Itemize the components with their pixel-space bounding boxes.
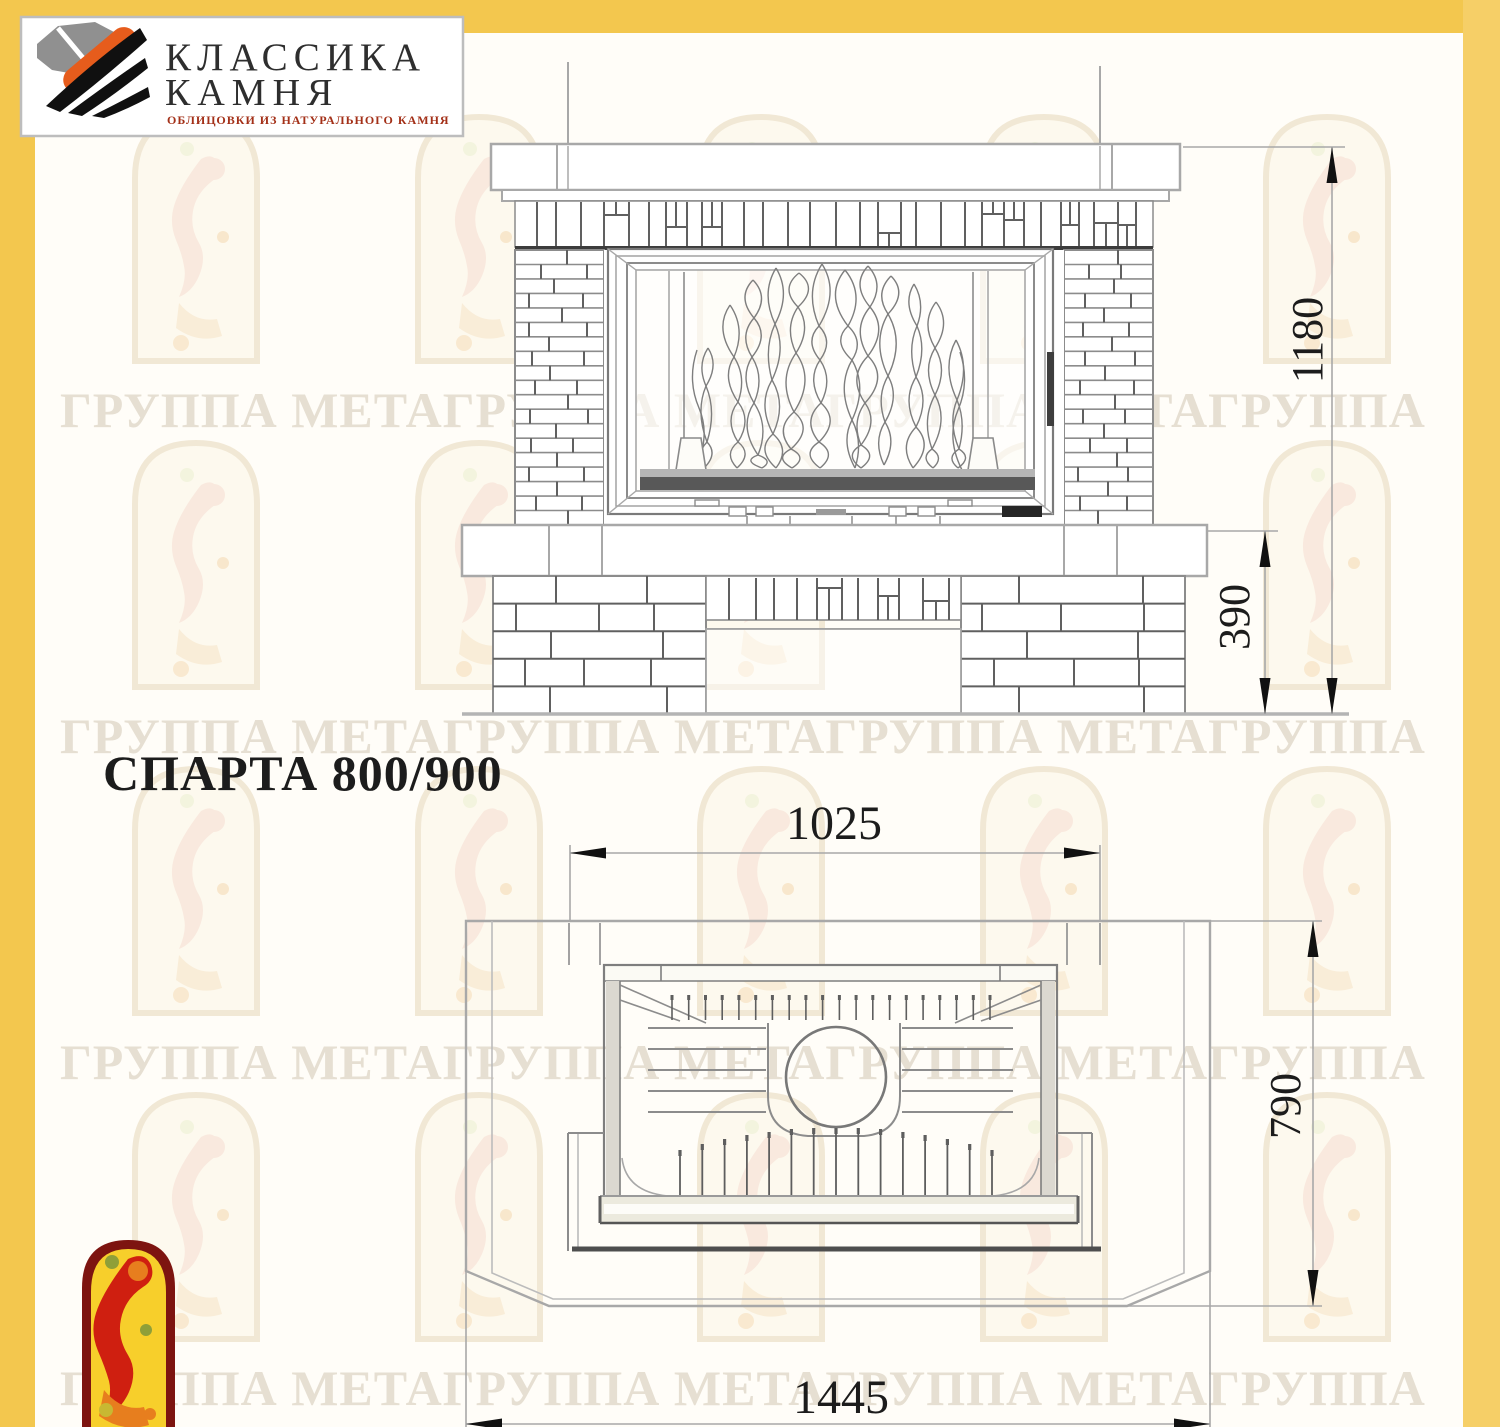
svg-text:1445: 1445: [793, 1371, 889, 1424]
svg-text:390: 390: [1210, 584, 1259, 650]
svg-text:1025: 1025: [786, 797, 882, 850]
svg-text:КАМНЯ: КАМНЯ: [165, 72, 339, 114]
svg-text:790: 790: [1261, 1073, 1310, 1139]
svg-text:СПАРТА 800/900: СПАРТА 800/900: [103, 745, 503, 801]
svg-text:ОБЛИЦОВКИ ИЗ НАТУРАЛЬНОГО КАМН: ОБЛИЦОВКИ ИЗ НАТУРАЛЬНОГО КАМНЯ: [167, 113, 450, 127]
svg-text:1180: 1180: [1283, 297, 1332, 383]
svg-text:ГРУППА МЕТАГРУППА МЕТАГРУППА М: ГРУППА МЕТАГРУППА МЕТАГРУППА МЕТАГРУППА: [60, 1034, 1426, 1090]
svg-text:ГРУППА МЕТАГРУППА МЕТАГРУППА М: ГРУППА МЕТАГРУППА МЕТАГРУППА МЕТАГРУППА: [60, 1360, 1426, 1416]
